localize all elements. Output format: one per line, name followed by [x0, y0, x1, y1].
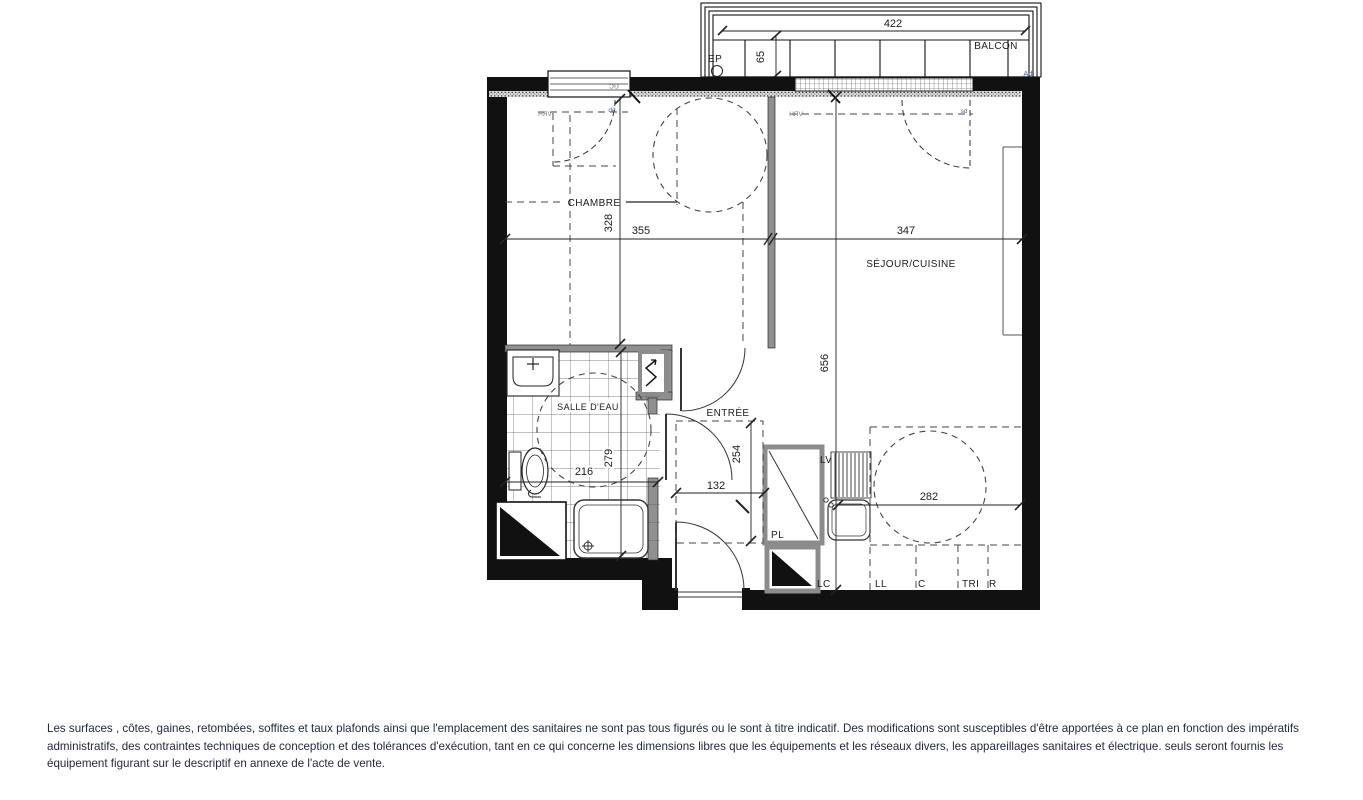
disclaimer-line-1: Les surfaces , côtes, gaines, retombées,… — [47, 720, 1299, 738]
disclaimer-line-3: équipement figurant sur le descriptif en… — [47, 755, 1299, 773]
annotation-dd: dd — [608, 107, 616, 114]
disclaimer-paragraph: Les surfaces , côtes, gaines, retombées,… — [47, 720, 1299, 773]
shower-icon — [574, 500, 648, 558]
dim-sejour-width: 347 — [897, 225, 915, 237]
dim-entree-width: 132 — [707, 480, 725, 492]
annotation-ep: EP — [708, 54, 722, 65]
dim-salle-eau-depth: 279 — [603, 449, 615, 467]
duct-zigzag-icon — [640, 352, 666, 394]
door-sejour-entree — [681, 348, 745, 411]
turning-circle-kitchen — [874, 431, 986, 543]
annotation-r: R — [989, 579, 997, 590]
annotation-lv: LV — [820, 455, 832, 466]
toilet-icon — [509, 448, 548, 497]
room-label-chambre: CHAMBRE — [568, 198, 621, 209]
dim-line-balcony-depth — [771, 31, 781, 80]
closets: PL — [765, 447, 822, 591]
annotation-ll: LL — [875, 579, 887, 590]
chambre-window-swing — [553, 100, 615, 162]
annotation-sd: sd — [961, 108, 968, 115]
balcony-railing — [701, 3, 1041, 77]
shaft-triangle-entry — [767, 547, 818, 591]
dim-balcon-width: 422 — [884, 18, 902, 30]
sejour-window — [795, 78, 973, 103]
shaft-triangle-bathroom — [496, 502, 566, 560]
dim-entree-depth: 254 — [731, 445, 743, 463]
dim-chambre-width: 355 — [632, 225, 650, 237]
wall-right — [1022, 77, 1040, 610]
annotation-lc: LC — [817, 579, 831, 590]
floor-plan-page: 422 65 BALCON EP Ad — [0, 0, 1363, 800]
annotation-pl: PL — [771, 530, 784, 541]
dish-drainer-icon — [831, 452, 871, 498]
dim-cuisine-width: 282 — [920, 491, 938, 503]
room-label-sejour: SÉJOUR/CUISINE — [866, 257, 956, 270]
entry-threshold — [678, 592, 742, 597]
dim-salle-eau-width: 216 — [575, 466, 593, 478]
entry-door-jamb-right — [742, 588, 750, 610]
chambre-window: GC — [548, 71, 640, 103]
annotation-gc: GC — [609, 82, 619, 89]
dim-line-balcony-width — [718, 26, 1030, 35]
balcony: 422 65 BALCON EP Ad — [701, 3, 1041, 80]
annotation-c: C — [918, 579, 926, 590]
wall-top-middle — [630, 77, 795, 91]
annotation-vrh-chambre: VRH — [538, 111, 552, 118]
washbasin-icon — [507, 350, 559, 396]
kitchen: LV LC LL C TRI R — [817, 147, 1022, 590]
room-label-balcon: BALCON — [974, 41, 1018, 52]
kitchen-sink-icon — [824, 498, 870, 540]
wall-bottom-bathroom — [487, 558, 662, 580]
dim-sejour-depth: 656 — [819, 354, 831, 372]
floor-plan-drawing: 422 65 BALCON EP Ad — [0, 0, 1363, 800]
kitchen-dashed-counter — [870, 427, 1022, 590]
annotation-ad: Ad — [1023, 69, 1032, 78]
annotation-vrh-sejour: VRH — [789, 111, 803, 118]
door-bathroom — [666, 414, 732, 480]
entry-door-jamb-left — [670, 588, 678, 610]
door-entrance — [676, 522, 744, 590]
bathroom: SALLE D'EAU — [496, 350, 666, 560]
disclaimer-line-2: administratifs, des contraintes techniqu… — [47, 738, 1299, 756]
dim-balcon-depth: 65 — [755, 51, 767, 63]
dim-chambre-depth: 328 — [603, 214, 615, 232]
room-label-salle-eau: SALLE D'EAU — [557, 402, 619, 412]
wall-chambre-sejour — [768, 97, 775, 348]
turning-circle-chambre — [653, 98, 767, 212]
annotation-tri: TRI — [962, 579, 979, 590]
room-label-entree: ENTRÉE — [707, 406, 750, 419]
wall-step — [642, 558, 672, 610]
